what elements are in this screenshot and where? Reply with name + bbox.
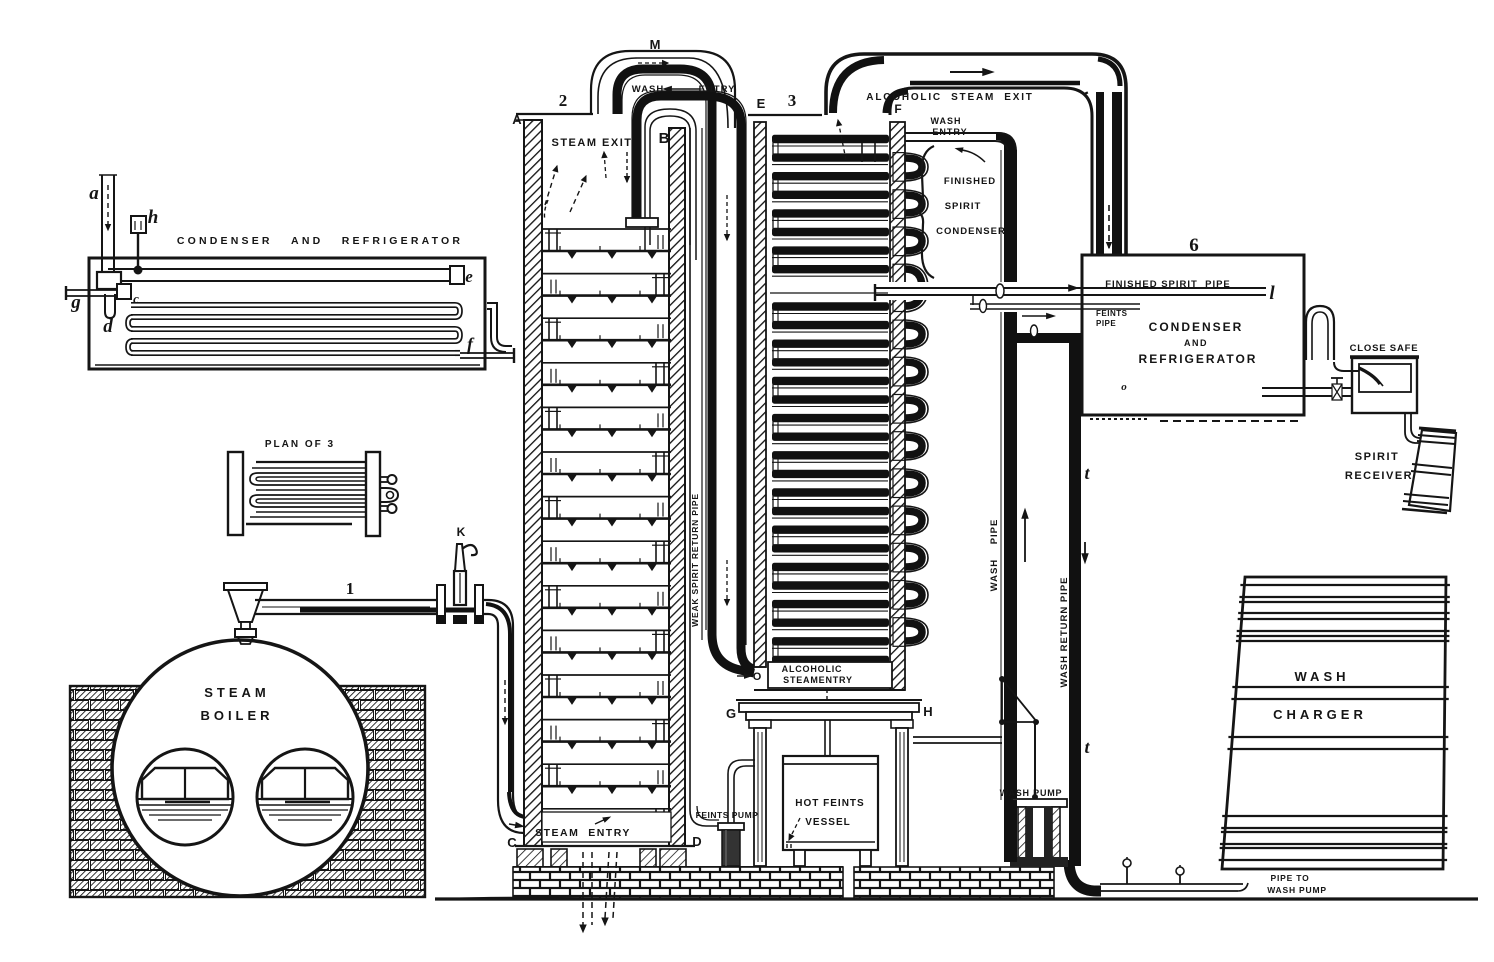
svg-text:ALCOHOLIC: ALCOHOLIC (782, 664, 843, 674)
svg-text:M: M (650, 37, 661, 52)
svg-text:CONDENSER: CONDENSER (1149, 320, 1244, 334)
svg-text:h: h (148, 207, 159, 228)
svg-text:B: B (659, 130, 670, 147)
svg-text:FINISHED SPIRIT PIPE: FINISHED SPIRIT PIPE (1105, 279, 1231, 290)
svg-text:c: c (133, 291, 139, 306)
svg-text:WEAK SPIRIT RETURN PIPE: WEAK SPIRIT RETURN PIPE (690, 493, 700, 627)
svg-text:O: O (753, 671, 762, 683)
svg-text:K: K (457, 525, 466, 539)
svg-text:WASH: WASH (1295, 669, 1350, 684)
svg-text:CONDENSER: CONDENSER (936, 226, 1006, 237)
svg-text:1: 1 (346, 579, 355, 598)
svg-text:l: l (1269, 283, 1275, 304)
svg-text:REFRIGERATOR: REFRIGERATOR (1139, 352, 1258, 366)
svg-text:SPIRIT: SPIRIT (945, 201, 982, 212)
svg-text:ALCOHOLIC STEAM EXIT: ALCOHOLIC STEAM EXIT (866, 92, 1033, 103)
svg-text:BOILER: BOILER (200, 708, 273, 723)
svg-text:HOT FEINTS: HOT FEINTS (795, 798, 864, 809)
svg-text:AND: AND (1184, 338, 1208, 348)
svg-text:STEAM EXIT: STEAM EXIT (551, 137, 632, 149)
svg-text:WASH RETURN PIPE: WASH RETURN PIPE (1059, 576, 1070, 687)
svg-text:e: e (465, 267, 473, 286)
svg-text:FINISHED: FINISHED (944, 176, 996, 187)
svg-text:6: 6 (1189, 235, 1199, 256)
svg-text:CLOSE SAFE: CLOSE SAFE (1350, 343, 1419, 354)
svg-text:FEINTS: FEINTS (1096, 309, 1128, 318)
svg-text:WASH PIPE: WASH PIPE (989, 519, 1000, 592)
svg-text:a: a (89, 183, 99, 204)
svg-text:g: g (70, 292, 81, 313)
svg-text:WASH PUMP: WASH PUMP (1267, 885, 1327, 895)
svg-text:WASH PUMP: WASH PUMP (1000, 788, 1063, 798)
svg-text:C: C (507, 835, 517, 850)
svg-text:ENTRY: ENTRY (699, 84, 736, 95)
svg-text:E: E (757, 96, 766, 111)
svg-text:WASH: WASH (632, 84, 665, 95)
svg-text:RECEIVER: RECEIVER (1345, 470, 1413, 482)
svg-text:STEAM ENTRY: STEAM ENTRY (535, 827, 631, 839)
svg-text:STEAM: STEAM (204, 685, 270, 700)
svg-text:A: A (512, 112, 522, 127)
svg-text:2: 2 (559, 91, 568, 110)
svg-text:CONDENSER AND REFRIGERATOR: CONDENSER AND REFRIGERATOR (177, 235, 463, 247)
svg-text:o: o (1121, 381, 1127, 393)
svg-text:G: G (726, 706, 736, 721)
svg-text:D: D (692, 834, 701, 849)
svg-text:PLAN OF 3: PLAN OF 3 (265, 439, 335, 450)
svg-text:PIPE: PIPE (1096, 319, 1116, 328)
svg-text:VESSEL: VESSEL (805, 817, 850, 828)
svg-text:d: d (103, 316, 113, 337)
svg-text:FEINTS PUMP: FEINTS PUMP (696, 810, 759, 820)
svg-text:SPIRIT: SPIRIT (1355, 451, 1399, 463)
svg-text:F: F (894, 102, 901, 116)
svg-text:STEAMENTRY: STEAMENTRY (783, 675, 853, 685)
svg-text:PIPE TO: PIPE TO (1271, 873, 1310, 883)
svg-text:CHARGER: CHARGER (1273, 707, 1367, 722)
svg-text:3: 3 (788, 91, 797, 110)
svg-text:WASH: WASH (931, 116, 962, 126)
svg-text:H: H (923, 704, 932, 719)
